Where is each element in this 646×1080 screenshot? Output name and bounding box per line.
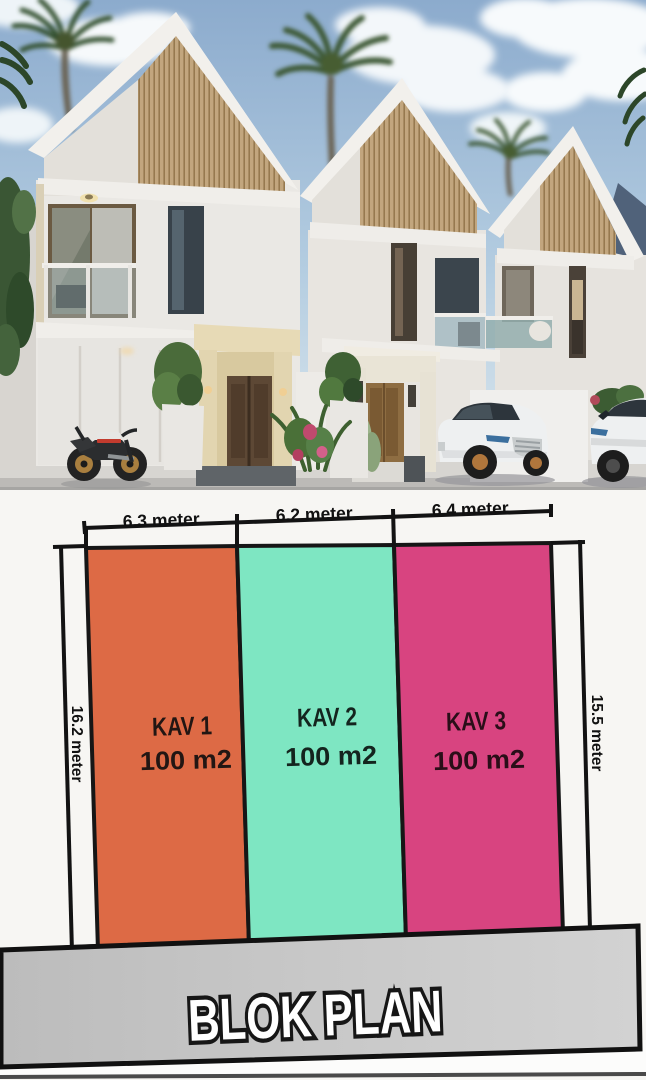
svg-text:6.4 meter: 6.4 meter xyxy=(431,498,509,521)
svg-text:KAV 1: KAV 1 xyxy=(152,710,213,742)
svg-text:6.2 meter: 6.2 meter xyxy=(275,503,353,526)
svg-text:16.2 meter: 16.2 meter xyxy=(68,706,85,783)
svg-text:6.3 meter: 6.3 meter xyxy=(122,509,200,532)
svg-text:KAV 2: KAV 2 xyxy=(297,701,358,733)
svg-text:100 m2: 100 m2 xyxy=(285,740,378,772)
svg-text:KAV 3: KAV 3 xyxy=(446,705,507,737)
svg-text:15.5 meter: 15.5 meter xyxy=(588,695,605,772)
svg-text:BLOK PLAN: BLOK PLAN xyxy=(187,978,444,1054)
svg-text:100 m2: 100 m2 xyxy=(433,744,526,776)
svg-text:100 m2: 100 m2 xyxy=(140,744,233,776)
